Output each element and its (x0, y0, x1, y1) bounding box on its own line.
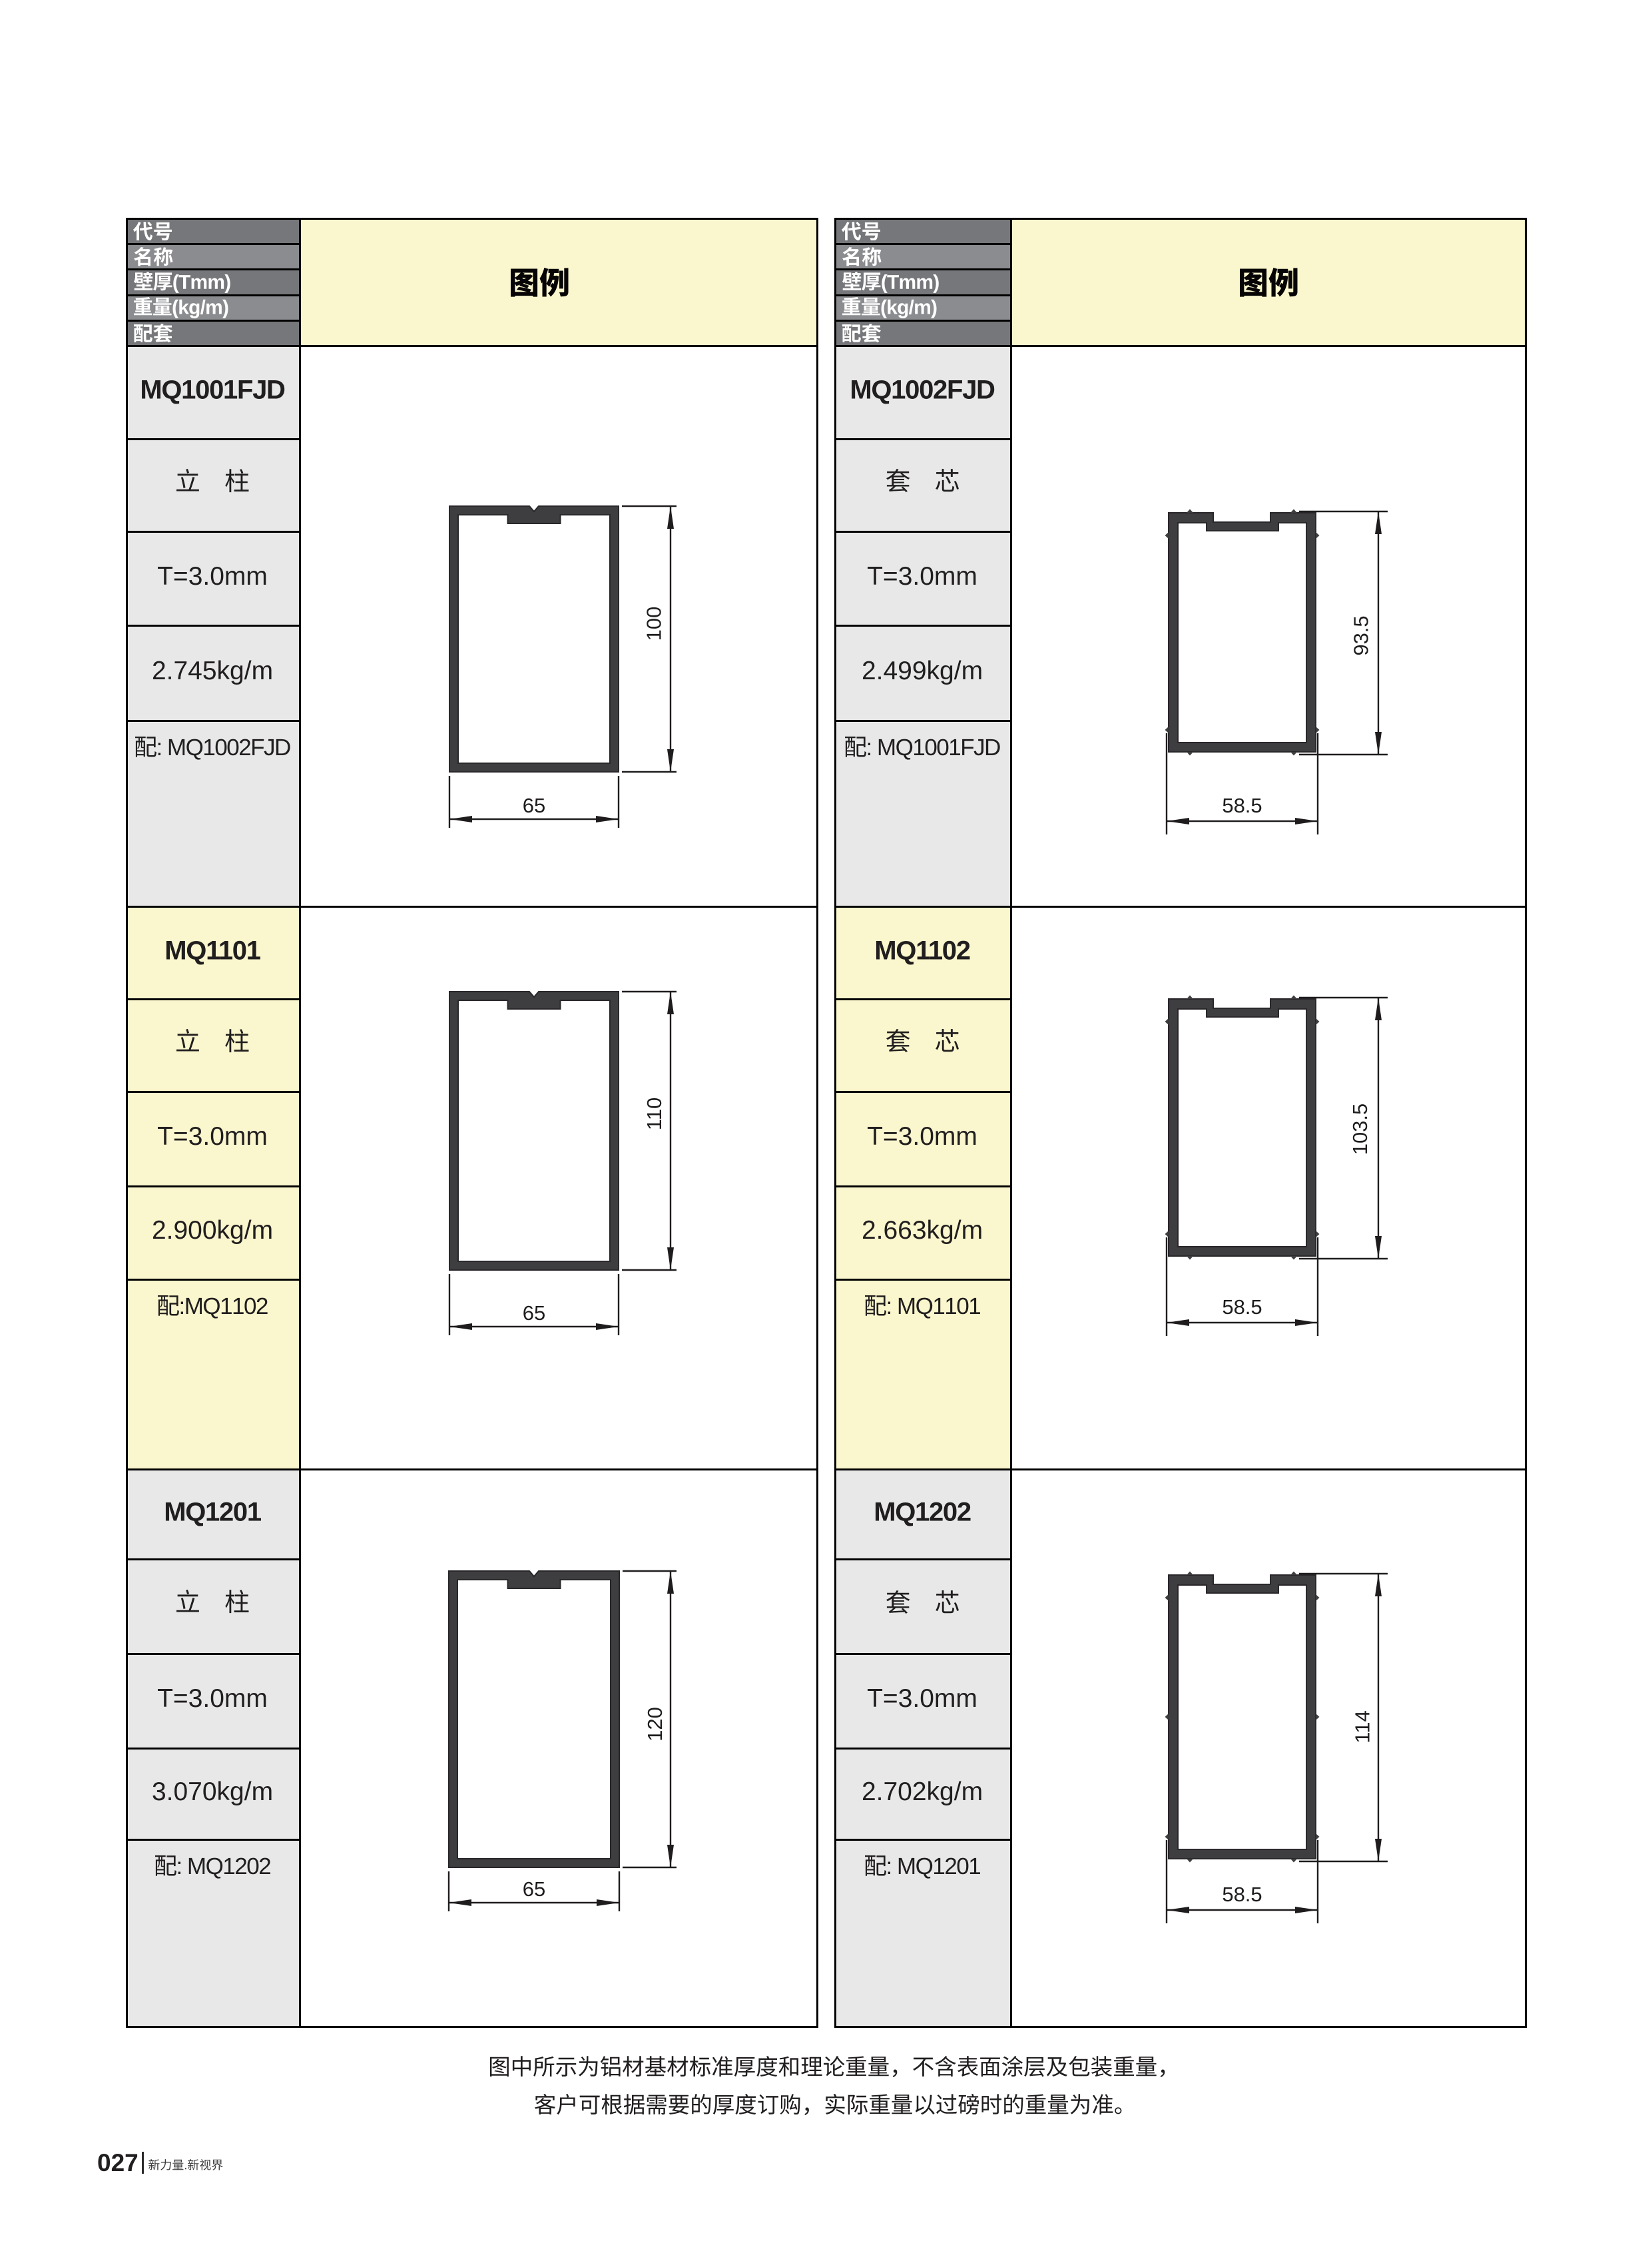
svg-text:114: 114 (1351, 1710, 1374, 1743)
svg-text:103.5: 103.5 (1348, 1104, 1372, 1155)
svg-text:58.5: 58.5 (1222, 1295, 1262, 1319)
svg-text:65: 65 (523, 1877, 545, 1901)
svg-text:93.5: 93.5 (1350, 615, 1373, 655)
svg-text:110: 110 (643, 1098, 666, 1130)
svg-text:65: 65 (523, 1301, 545, 1325)
svg-text:100: 100 (643, 607, 666, 641)
svg-text:58.5: 58.5 (1222, 1883, 1262, 1906)
svg-text:120: 120 (643, 1707, 667, 1742)
svg-text:58.5: 58.5 (1222, 794, 1262, 817)
svg-text:65: 65 (523, 794, 545, 817)
